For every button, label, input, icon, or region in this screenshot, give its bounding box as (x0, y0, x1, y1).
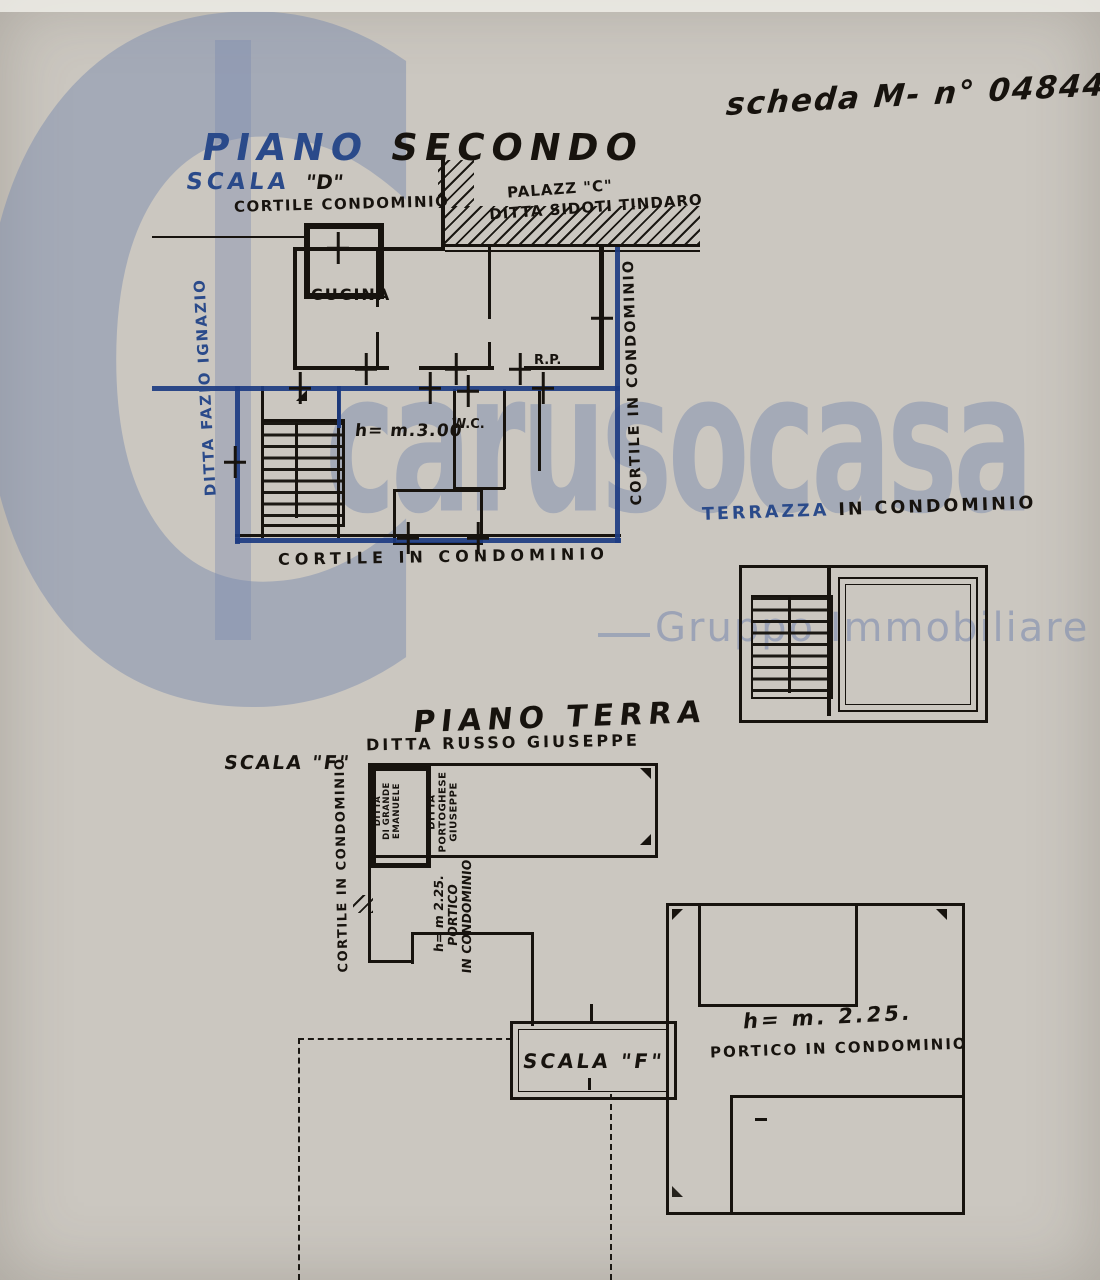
ground-floor-subtitle: DITTA RUSSO GIUSEPPE (366, 732, 640, 754)
window-mark (327, 232, 349, 264)
corner-mark (640, 768, 651, 779)
wall-line (655, 763, 658, 858)
wall-line (368, 855, 658, 858)
portoghese-line3: GIUSEPPE (449, 765, 460, 860)
boundary-dashed-line (298, 1038, 512, 1040)
stairs-terrace (751, 595, 833, 699)
second-floor-title: PIANOSECONDO (198, 128, 647, 169)
wall-line (588, 1078, 591, 1090)
window-mark (457, 375, 479, 407)
scala-f-box-label: SCALA "F" (521, 1050, 665, 1072)
portico-left-line2: PORTICO (446, 854, 460, 975)
sheet-note: scheda M- n° 04844 (725, 68, 1100, 122)
wall-line (503, 389, 506, 489)
corner-mark (936, 909, 947, 920)
wall-line (827, 568, 831, 716)
wall-line (666, 903, 669, 1215)
corner-mark (640, 834, 651, 845)
wall-line (698, 906, 701, 1006)
wall-line (788, 597, 791, 693)
boundary-dashed-line (610, 1094, 612, 1280)
watermark-company-line (598, 633, 650, 637)
apartment-highlight-line (235, 538, 621, 543)
ceiling-height-label: h= m.3.00 (354, 422, 463, 441)
wall-line (488, 247, 491, 319)
cortile-left-ground-vertical-label: CORTILE IN CONDOMINIO (334, 757, 356, 972)
rp-label: R.P. (534, 354, 561, 368)
wall-line (590, 1004, 593, 1022)
scala-d-word: SCALA (184, 169, 291, 195)
wc-label: W.C. (452, 418, 485, 432)
portico-left-line1: h= m 2.25. (432, 853, 446, 974)
wall-line (295, 423, 298, 518)
wall-line (445, 250, 700, 252)
window-mark (509, 353, 531, 385)
window-mark (591, 302, 613, 334)
portico-right-label: PORTICO IN CONDOMINIO (710, 1036, 968, 1061)
window-mark (224, 446, 246, 478)
wall-line (666, 1212, 965, 1215)
wall-line (152, 236, 304, 238)
corner-mark (672, 909, 683, 920)
wall-line (368, 763, 371, 963)
second-floor-title-word1: PIANO (198, 126, 373, 169)
wall-line (293, 247, 297, 370)
second-floor-title-word2: SECONDO (387, 126, 647, 169)
wall-line (962, 903, 965, 1215)
portoghese-text: DITTA PORTOGHESE GIUSEPPE (427, 765, 469, 860)
scala-d-name: "D" (304, 170, 345, 194)
wall-line (855, 906, 858, 1006)
wall-line (730, 1095, 965, 1098)
scan-edge (0, 0, 1100, 12)
floor-plan-scan: C carusocasa Gruppo Immobiliare s.r.l. s… (0, 0, 1100, 1280)
apartment-highlight-line (615, 247, 620, 543)
wall-line (368, 763, 658, 766)
wall-line (730, 1095, 733, 1214)
corner-mark (672, 1186, 683, 1197)
wall-line (453, 487, 505, 490)
portico-left-text: h= m 2.25. PORTICO IN CONDOMINIO (432, 853, 492, 979)
portico-left-line3: IN CONDOMINIO (460, 856, 474, 977)
wall-line (666, 903, 965, 906)
scala-d-label: SCALA"D" (184, 170, 345, 195)
terrace-inner-outline (838, 577, 978, 712)
stairs-second-floor (261, 419, 345, 527)
window-mark (355, 353, 377, 385)
window-mark (532, 372, 554, 404)
wall-line (755, 1118, 767, 1121)
cortile-bottom-label: CORTILE IN CONDOMINIO (278, 545, 609, 568)
wall-line (368, 960, 414, 963)
wall-line (261, 386, 264, 538)
wall-line (235, 534, 621, 537)
kitchen-label: CUCINA (311, 286, 391, 304)
boundary-dashed-line (298, 1038, 300, 1280)
wall-line (445, 244, 700, 247)
owner-box-text: DITTA DI GRANDE EMANUELE (374, 771, 416, 851)
window-mark (419, 372, 441, 404)
terrazza-word: TERRAZZA (702, 500, 830, 524)
apartment-highlight-line (337, 386, 341, 428)
scala-f-box: SCALA "F" (510, 1021, 677, 1100)
wall-line (293, 247, 445, 251)
wall-line (531, 932, 534, 1026)
portoghese-line2: PORTOGHESE (438, 765, 449, 860)
owner-box-line3: EMANUELE (393, 771, 402, 851)
portoghese-line1: DITTA (427, 765, 438, 860)
